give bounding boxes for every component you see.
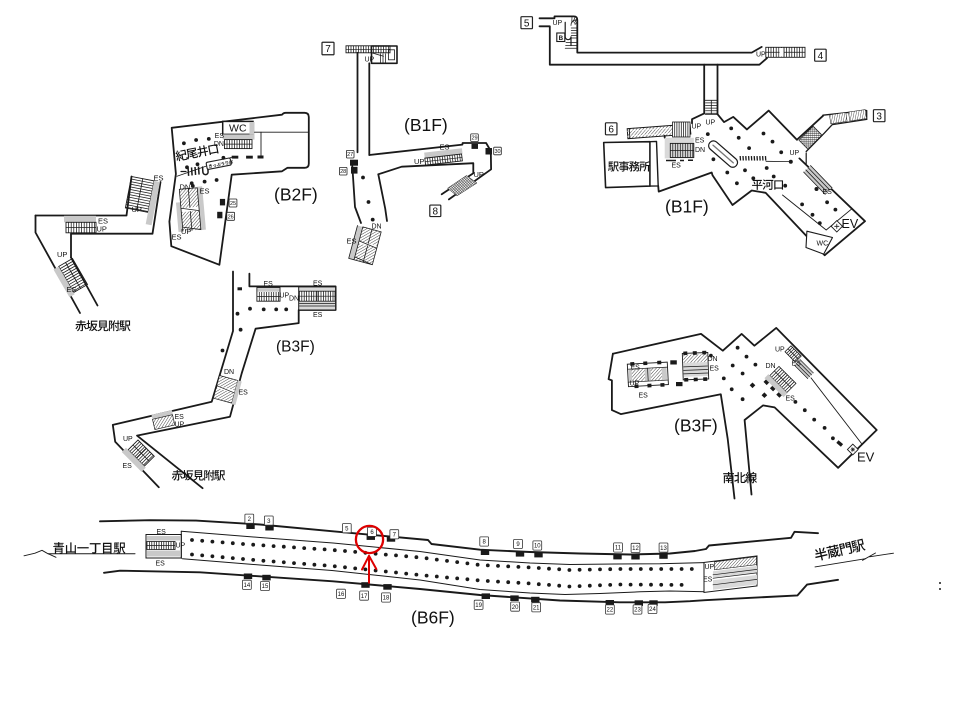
svg-text:25: 25 xyxy=(230,201,236,207)
svg-text:DN: DN xyxy=(766,363,776,370)
svg-text:22: 22 xyxy=(607,608,614,614)
svg-text:(B1F): (B1F) xyxy=(404,115,448,135)
svg-text:EV: EV xyxy=(842,217,859,231)
svg-text:ES: ES xyxy=(440,143,450,152)
svg-text:ES: ES xyxy=(695,138,705,145)
svg-text:UP: UP xyxy=(57,250,67,259)
svg-text:5: 5 xyxy=(524,18,530,29)
svg-text:WC: WC xyxy=(817,241,829,248)
svg-text:WC: WC xyxy=(229,123,247,135)
svg-text:UP: UP xyxy=(706,120,716,127)
svg-text:ES: ES xyxy=(67,285,77,294)
svg-text:8: 8 xyxy=(433,206,439,217)
svg-text:EV: EV xyxy=(857,450,875,465)
svg-text:ES: ES xyxy=(215,133,225,140)
svg-text:DN: DN xyxy=(708,356,718,363)
svg-text:30: 30 xyxy=(494,149,500,155)
svg-text:17: 17 xyxy=(361,594,368,600)
svg-text:UP: UP xyxy=(474,170,484,179)
svg-text:27: 27 xyxy=(347,152,353,158)
svg-text:ES: ES xyxy=(157,529,167,536)
svg-text:26: 26 xyxy=(228,214,234,220)
svg-text:UP: UP xyxy=(705,564,715,571)
svg-text:ES: ES xyxy=(172,233,182,242)
svg-text:ES: ES xyxy=(154,174,164,183)
svg-text:UP: UP xyxy=(175,422,185,429)
svg-text:ES: ES xyxy=(313,312,323,319)
svg-text:11: 11 xyxy=(615,546,622,552)
svg-text:DN: DN xyxy=(695,147,705,154)
svg-text:16: 16 xyxy=(338,592,345,598)
svg-text:19: 19 xyxy=(475,603,482,609)
svg-text:(B1F): (B1F) xyxy=(665,197,709,217)
svg-text:DN: DN xyxy=(372,224,382,231)
svg-text:UP: UP xyxy=(775,347,785,354)
svg-text:14: 14 xyxy=(244,583,251,589)
svg-text:7: 7 xyxy=(325,44,331,55)
svg-text:ES: ES xyxy=(631,365,641,372)
svg-text:ES: ES xyxy=(792,360,802,367)
svg-text:4: 4 xyxy=(818,51,824,62)
svg-text:28: 28 xyxy=(340,169,346,175)
svg-text:6: 6 xyxy=(608,124,614,135)
svg-text:ES: ES xyxy=(175,414,185,421)
svg-text:ES: ES xyxy=(313,280,323,287)
svg-text:UP: UP xyxy=(630,381,640,388)
svg-text:ES: ES xyxy=(156,561,166,568)
svg-text:DN: DN xyxy=(289,296,299,303)
svg-text:ES: ES xyxy=(823,189,833,196)
svg-text:ES: ES xyxy=(703,577,713,584)
svg-text:ES: ES xyxy=(639,393,649,400)
svg-text:(B3F): (B3F) xyxy=(276,339,315,356)
svg-text:18: 18 xyxy=(383,596,390,602)
svg-text:UP: UP xyxy=(176,543,186,550)
svg-text:UP: UP xyxy=(692,123,702,130)
svg-text:UP: UP xyxy=(123,436,133,443)
svg-text:12: 12 xyxy=(632,546,639,552)
svg-text:(B3F): (B3F) xyxy=(674,416,718,436)
svg-text:29: 29 xyxy=(471,136,477,142)
svg-text:21: 21 xyxy=(533,605,540,611)
svg-text:15: 15 xyxy=(262,584,269,590)
svg-text:3: 3 xyxy=(876,111,882,122)
svg-text:ES: ES xyxy=(239,390,249,397)
svg-text:DN: DN xyxy=(224,369,234,376)
svg-text:ES: ES xyxy=(672,163,682,170)
svg-text:ES: ES xyxy=(710,366,720,373)
svg-text:ES: ES xyxy=(264,281,274,288)
svg-text:23: 23 xyxy=(634,608,641,614)
svg-text:(B2F): (B2F) xyxy=(274,185,318,205)
svg-text:10: 10 xyxy=(534,544,541,550)
svg-text:UP: UP xyxy=(553,20,563,27)
svg-text:UP: UP xyxy=(756,52,766,59)
svg-text:UP: UP xyxy=(132,205,142,214)
svg-text:UP: UP xyxy=(414,157,424,166)
svg-text:ES: ES xyxy=(123,463,133,470)
svg-text:13: 13 xyxy=(660,546,667,552)
svg-text:UP: UP xyxy=(97,225,107,234)
svg-text:24: 24 xyxy=(649,607,656,613)
svg-text:UP: UP xyxy=(181,227,191,236)
svg-text:DN: DN xyxy=(180,183,191,192)
svg-text:ES: ES xyxy=(347,237,357,246)
svg-text:UP: UP xyxy=(790,150,800,157)
svg-text:20: 20 xyxy=(512,605,519,611)
svg-text:ES: ES xyxy=(200,187,210,196)
svg-text:B: B xyxy=(559,35,564,42)
svg-text:(B6F): (B6F) xyxy=(411,608,455,628)
